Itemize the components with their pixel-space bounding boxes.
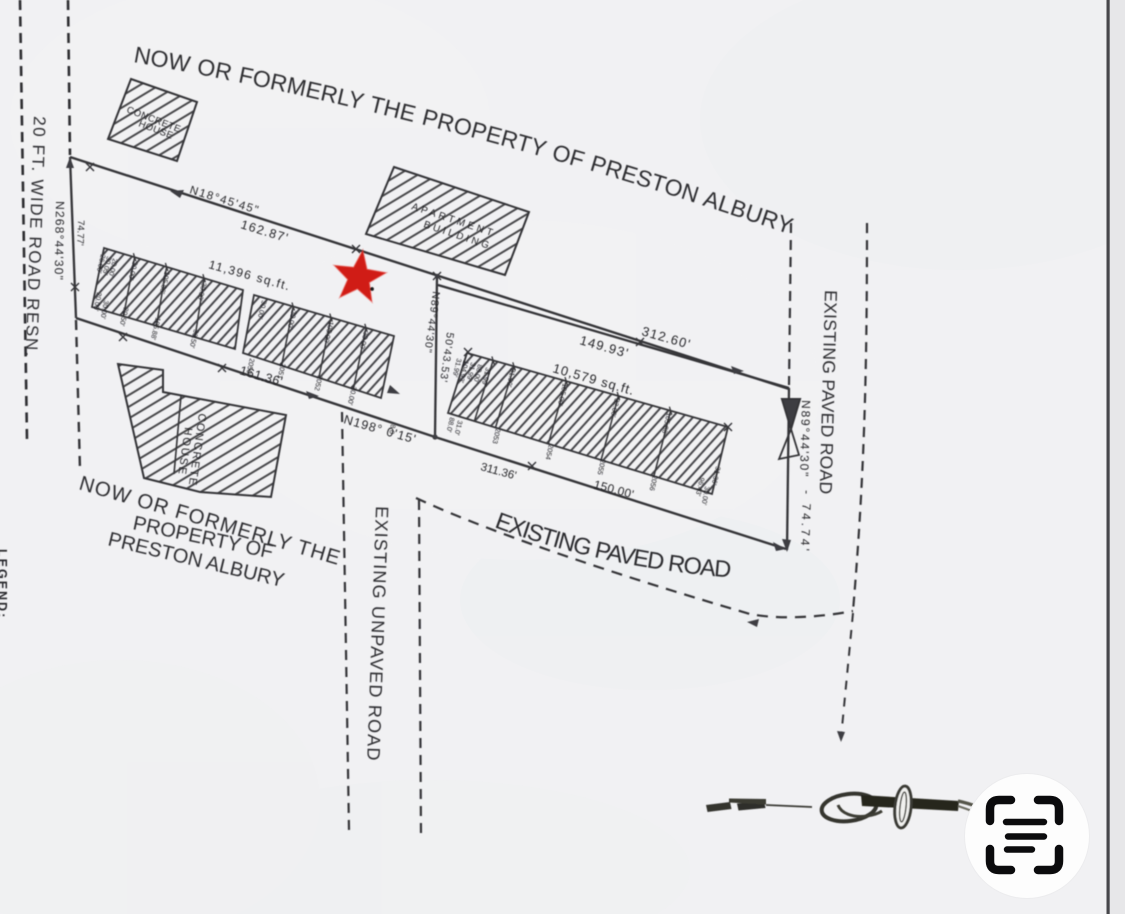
svg-text:- 74.74': - 74.74'	[798, 490, 814, 554]
svg-text:74.77': 74.77'	[74, 220, 86, 246]
svg-text:N268°44'30": N268°44'30"	[52, 201, 67, 281]
svg-text:LEGEND:: LEGEND:	[0, 549, 9, 619]
svg-text:N89°44'30": N89°44'30"	[797, 400, 813, 478]
